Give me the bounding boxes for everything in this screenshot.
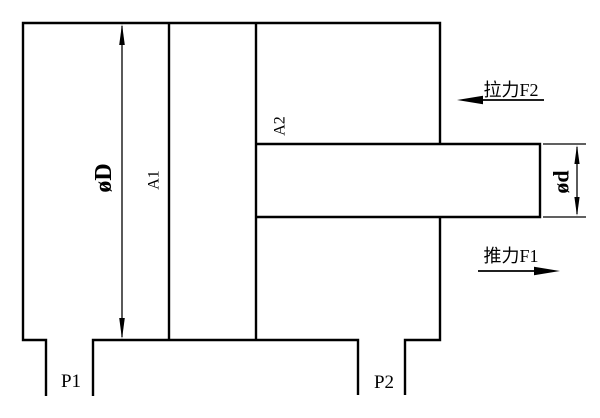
port-1-label: P1 <box>61 371 81 392</box>
rod-diameter-label: ød <box>549 170 574 193</box>
port-2-label: P2 <box>374 372 394 393</box>
pull-force-label: 拉力F2 <box>483 80 538 100</box>
piston-area-label: A1 <box>146 170 163 190</box>
diagram-canvas: øD A1 A2 ød 拉力F2 推力F1 P1 P2 <box>0 0 600 418</box>
push-force-label: 推力F1 <box>483 246 538 266</box>
bore-diameter-label: øD <box>91 163 117 192</box>
hydraulic-cylinder-diagram: øD A1 A2 ød 拉力F2 推力F1 P1 P2 <box>0 0 600 418</box>
diagram-background <box>0 0 600 418</box>
rod-side-area-label: A2 <box>272 116 289 136</box>
